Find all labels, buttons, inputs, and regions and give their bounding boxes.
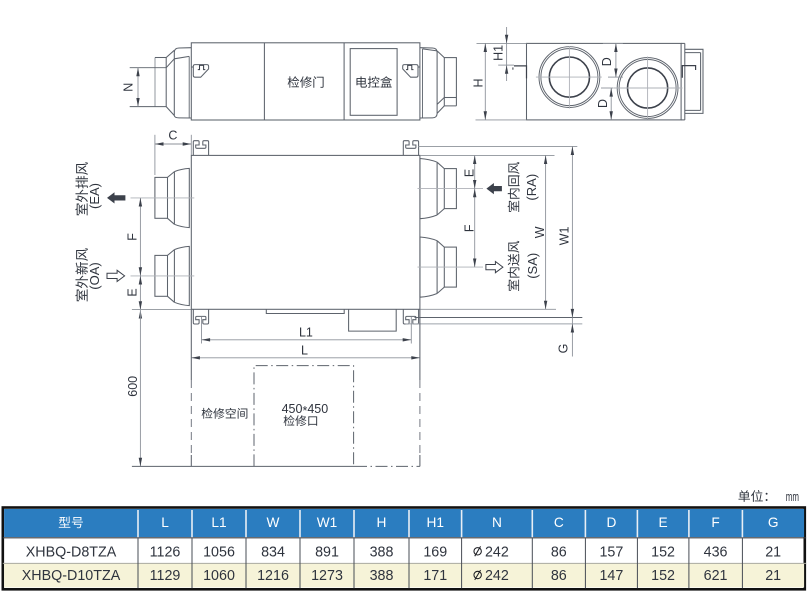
svg-text:E: E xyxy=(126,288,140,296)
svg-text:86: 86 xyxy=(551,568,567,584)
svg-text:H1: H1 xyxy=(492,45,506,61)
svg-text:169: 169 xyxy=(423,544,447,560)
svg-text:C: C xyxy=(168,128,177,142)
svg-text:W: W xyxy=(267,515,280,530)
svg-text:N: N xyxy=(121,83,135,92)
svg-text:(OA): (OA) xyxy=(87,262,102,289)
svg-text:G: G xyxy=(768,515,779,530)
svg-text:(RA): (RA) xyxy=(524,174,539,201)
svg-text:621: 621 xyxy=(704,568,728,584)
svg-text:D: D xyxy=(600,57,614,66)
svg-text:21: 21 xyxy=(765,568,781,584)
svg-text:E: E xyxy=(659,515,668,530)
svg-text:1060: 1060 xyxy=(203,568,235,584)
svg-text:F: F xyxy=(711,515,719,530)
svg-text:F: F xyxy=(463,224,477,232)
svg-text:388: 388 xyxy=(370,568,394,584)
svg-text:152: 152 xyxy=(651,568,675,584)
svg-text:171: 171 xyxy=(423,568,447,584)
svg-text:(SA): (SA) xyxy=(525,253,540,279)
svg-text:157: 157 xyxy=(599,544,623,560)
svg-text:D: D xyxy=(596,99,610,108)
svg-text:147: 147 xyxy=(599,568,623,584)
svg-text:L: L xyxy=(161,515,169,530)
svg-text:388: 388 xyxy=(370,544,394,560)
svg-text:1126: 1126 xyxy=(150,544,181,560)
svg-text:F: F xyxy=(126,233,140,241)
svg-text:1056: 1056 xyxy=(203,544,235,560)
svg-text:W1: W1 xyxy=(317,515,338,530)
svg-text:W1: W1 xyxy=(558,226,572,245)
svg-text:H1: H1 xyxy=(427,515,445,530)
svg-text:N: N xyxy=(492,515,502,530)
svg-text:86: 86 xyxy=(551,544,567,560)
svg-text:21: 21 xyxy=(765,544,781,560)
svg-text:H: H xyxy=(472,78,486,87)
svg-text:E: E xyxy=(463,169,477,177)
svg-text:242: 242 xyxy=(485,544,509,560)
svg-text:L1: L1 xyxy=(299,325,313,339)
svg-text:242: 242 xyxy=(485,568,509,584)
svg-text:450*450: 450*450 xyxy=(282,402,329,418)
svg-text:1216: 1216 xyxy=(257,568,289,584)
svg-text:152: 152 xyxy=(651,544,675,560)
svg-text:D: D xyxy=(606,515,616,530)
svg-text:1129: 1129 xyxy=(150,568,181,584)
svg-text:L: L xyxy=(301,343,308,357)
svg-text:(EA): (EA) xyxy=(87,183,102,209)
svg-text:XHBQ-D10TZA: XHBQ-D10TZA xyxy=(22,568,121,584)
svg-text:L1: L1 xyxy=(211,515,226,530)
svg-text:1273: 1273 xyxy=(311,568,343,584)
svg-text:W: W xyxy=(533,226,547,238)
svg-text:C: C xyxy=(554,515,564,530)
svg-text:G: G xyxy=(557,344,571,354)
svg-text:H: H xyxy=(377,515,387,530)
svg-text:XHBQ-D8TZA: XHBQ-D8TZA xyxy=(26,544,117,560)
svg-text:834: 834 xyxy=(261,544,285,560)
svg-text:436: 436 xyxy=(704,544,728,560)
svg-text:mm: mm xyxy=(786,490,799,504)
svg-text:891: 891 xyxy=(315,544,339,560)
svg-text:600: 600 xyxy=(126,376,140,397)
